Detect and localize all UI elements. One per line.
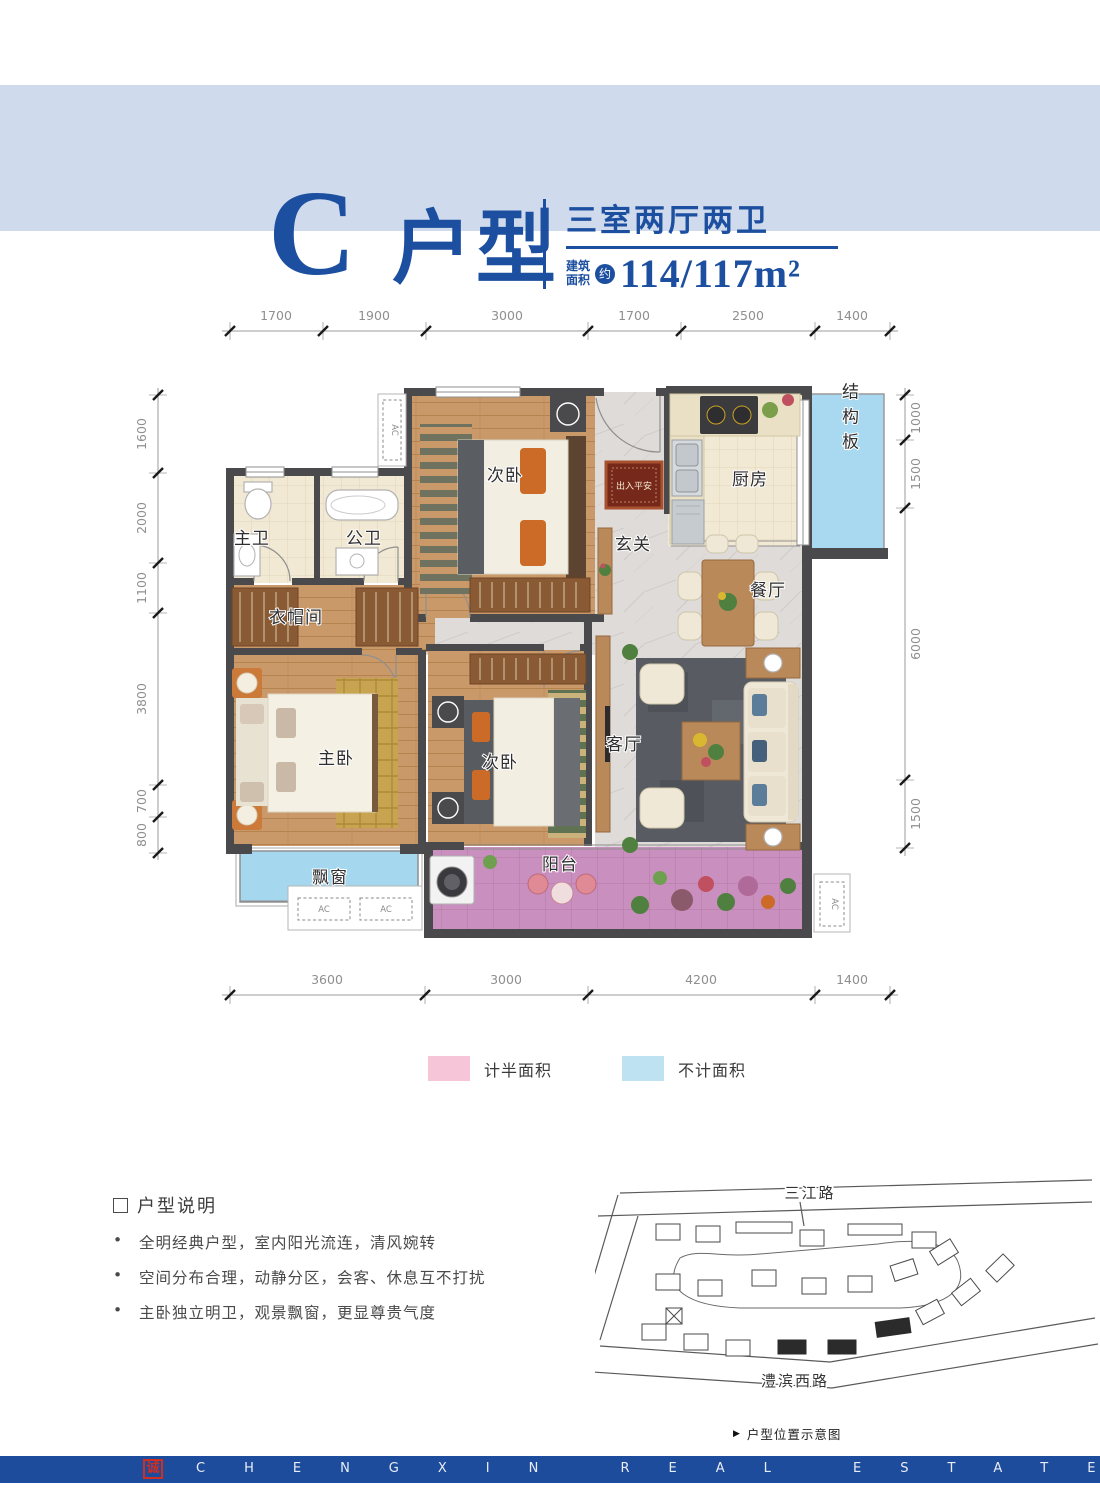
svg-text:3000: 3000: [491, 308, 523, 323]
label-master-bedroom: 主卧: [318, 749, 354, 769]
svg-text:AC: AC: [318, 905, 330, 915]
label-bedroom-top: 次卧: [487, 466, 523, 486]
svg-text:1100: 1100: [134, 572, 149, 604]
spec-rule: [566, 246, 838, 249]
ac-platform-right: AC: [814, 874, 850, 932]
ac-platform-bottom: AC AC: [288, 886, 422, 930]
label-living-room: 客厅: [606, 735, 642, 755]
svg-text:2500: 2500: [732, 308, 764, 323]
site-inner-loop: [674, 1241, 961, 1308]
svg-text:1900: 1900: [358, 308, 390, 323]
label-cloakroom: 衣帽间: [269, 608, 323, 628]
area-value: 114/117m²: [620, 254, 801, 294]
rooms-title: 三室两厅两卫: [566, 195, 838, 240]
site-map: 三江路 澧滨西路: [595, 1160, 1100, 1450]
header-divider: [543, 199, 546, 289]
svg-text:700: 700: [134, 789, 149, 813]
label-balcony: 阳台: [542, 855, 578, 875]
description-item: •主卧独立明卫，观景飘窗，更显尊贵气度: [113, 1301, 593, 1323]
legend-label-half-area: 计半面积: [484, 1057, 552, 1081]
label-structure-board: 结构板: [838, 382, 859, 457]
approx-badge: 约: [595, 264, 615, 284]
unit-type-letter: C: [268, 173, 356, 295]
svg-text:1500: 1500: [908, 458, 923, 490]
window-bedroom-top: [436, 387, 520, 397]
label-dining-room: 餐厅: [750, 581, 786, 601]
caption-arrow-icon: ▶: [733, 1429, 741, 1439]
svg-text:4200: 4200: [685, 972, 717, 987]
label-shared-bath: 公卫: [346, 529, 382, 549]
label-master-bath: 主卫: [234, 529, 270, 549]
window-bath-1: [246, 467, 284, 477]
label-kitchen: 厨房: [732, 470, 768, 490]
label-entry-hall: 玄关: [615, 535, 651, 555]
svg-text:800: 800: [134, 823, 149, 847]
svg-text:3000: 3000: [490, 972, 522, 987]
svg-text:1700: 1700: [260, 308, 292, 323]
road-bottom-label: 澧滨西路: [761, 1372, 829, 1390]
road-top-label: 三江路: [784, 1184, 835, 1202]
window-bath-2: [332, 467, 378, 477]
svg-text:1700: 1700: [618, 308, 650, 323]
brand-name: CHENGXIN REAL ESTATE: [196, 1461, 1096, 1476]
site-buildings: [642, 1222, 1014, 1356]
legend-swatch-half-area: [428, 1056, 470, 1081]
svg-text:6000: 6000: [908, 628, 923, 660]
description-item: •全明经典户型，室内阳光流连，清风婉转: [113, 1231, 593, 1253]
svg-text:AC: AC: [380, 905, 392, 915]
svg-text:3800: 3800: [134, 683, 149, 715]
square-bullet-icon: [113, 1198, 128, 1213]
svg-text:3600: 3600: [311, 972, 343, 987]
ac-platform-top-left: AC: [378, 394, 406, 466]
svg-text:1400: 1400: [836, 972, 868, 987]
svg-text:AC: AC: [389, 424, 399, 436]
svg-text:1000: 1000: [908, 402, 923, 434]
label-second-bedroom: 次卧: [482, 753, 518, 773]
svg-text:AC: AC: [829, 898, 839, 910]
floorplan-poster: C 户型 三室两厅两卫 建筑 面积 约 114/117m²: [0, 0, 1100, 1494]
doormat: 出入平安: [606, 462, 662, 508]
description-list: •全明经典户型，室内阳光流连，清风婉转 •空间分布合理，动静分区，会客、休息互不…: [113, 1231, 593, 1323]
svg-text:1500: 1500: [908, 798, 923, 830]
legend: 计半面积 不计面积: [428, 1056, 746, 1081]
floor-plan: 出入平安: [100, 300, 960, 1012]
area-label: 建筑 面积: [566, 260, 590, 288]
label-bay-window: 飘窗: [312, 868, 348, 888]
unit-description: 户型说明 •全明经典户型，室内阳光流连，清风婉转 •空间分布合理，动静分区，会客…: [113, 1192, 593, 1323]
brand-seal-icon: 诚: [143, 1459, 163, 1479]
header-band: C 户型 三室两厅两卫 建筑 面积 约 114/117m²: [0, 85, 1100, 231]
header-spec: 三室两厅两卫 建筑 面积 约 114/117m²: [566, 195, 838, 294]
legend-label-excluded-area: 不计面积: [678, 1057, 746, 1081]
site-x-marker: [666, 1308, 682, 1324]
svg-text:出入平安: 出入平安: [616, 480, 652, 492]
svg-text:1400: 1400: [836, 308, 868, 323]
svg-text:2000: 2000: [134, 502, 149, 534]
description-item: •空间分布合理，动静分区，会客、休息互不打扰: [113, 1266, 593, 1288]
description-title: 户型说明: [113, 1192, 593, 1218]
legend-swatch-excluded-area: [622, 1056, 664, 1081]
svg-text:1600: 1600: [134, 418, 149, 450]
site-map-caption: ▶ 户型位置示意图: [733, 1424, 841, 1443]
unit-type-name: 户型: [392, 209, 560, 289]
